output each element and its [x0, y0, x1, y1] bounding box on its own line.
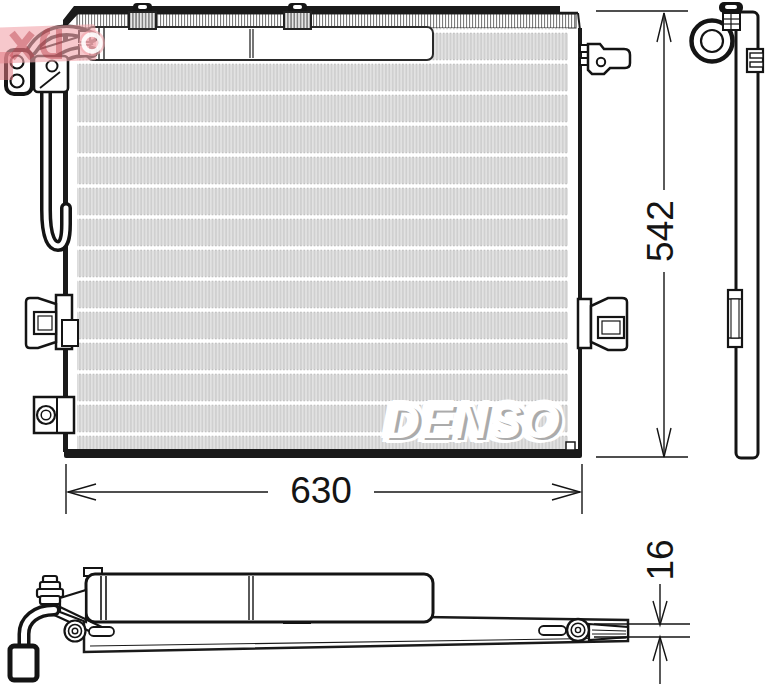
dimension-height-label: 542	[622, 193, 698, 269]
bracket-top-right	[580, 44, 630, 74]
side-profile-bar	[736, 12, 758, 458]
threaded-fitting	[37, 576, 63, 604]
core-fins	[77, 28, 568, 452]
receiver-drier	[84, 568, 433, 622]
top-mounting-clip-left	[129, 3, 156, 29]
side-comb-bracket	[747, 49, 763, 72]
bottom-view	[10, 568, 628, 680]
denso-logo: DENSO	[373, 394, 573, 448]
right-edge	[578, 28, 582, 452]
pipe-end-cap	[10, 646, 37, 680]
top-mounting-clip-right	[284, 3, 311, 29]
bracket-mid-right	[578, 298, 627, 350]
front-view	[0, 3, 630, 458]
bracket-bolt-left	[34, 397, 74, 433]
side-view	[692, 2, 764, 458]
condenser-technical-drawing: 630 542 16 DENSO	[0, 0, 765, 689]
bottom-bar	[64, 449, 582, 458]
side-mid-bracket	[728, 290, 742, 347]
dimension-width-label: 630	[271, 472, 371, 508]
dimension-depth-label: 16	[630, 530, 690, 590]
side-top-clip	[723, 13, 740, 30]
header-tank	[87, 27, 433, 60]
bracket-mid-left	[26, 295, 78, 349]
